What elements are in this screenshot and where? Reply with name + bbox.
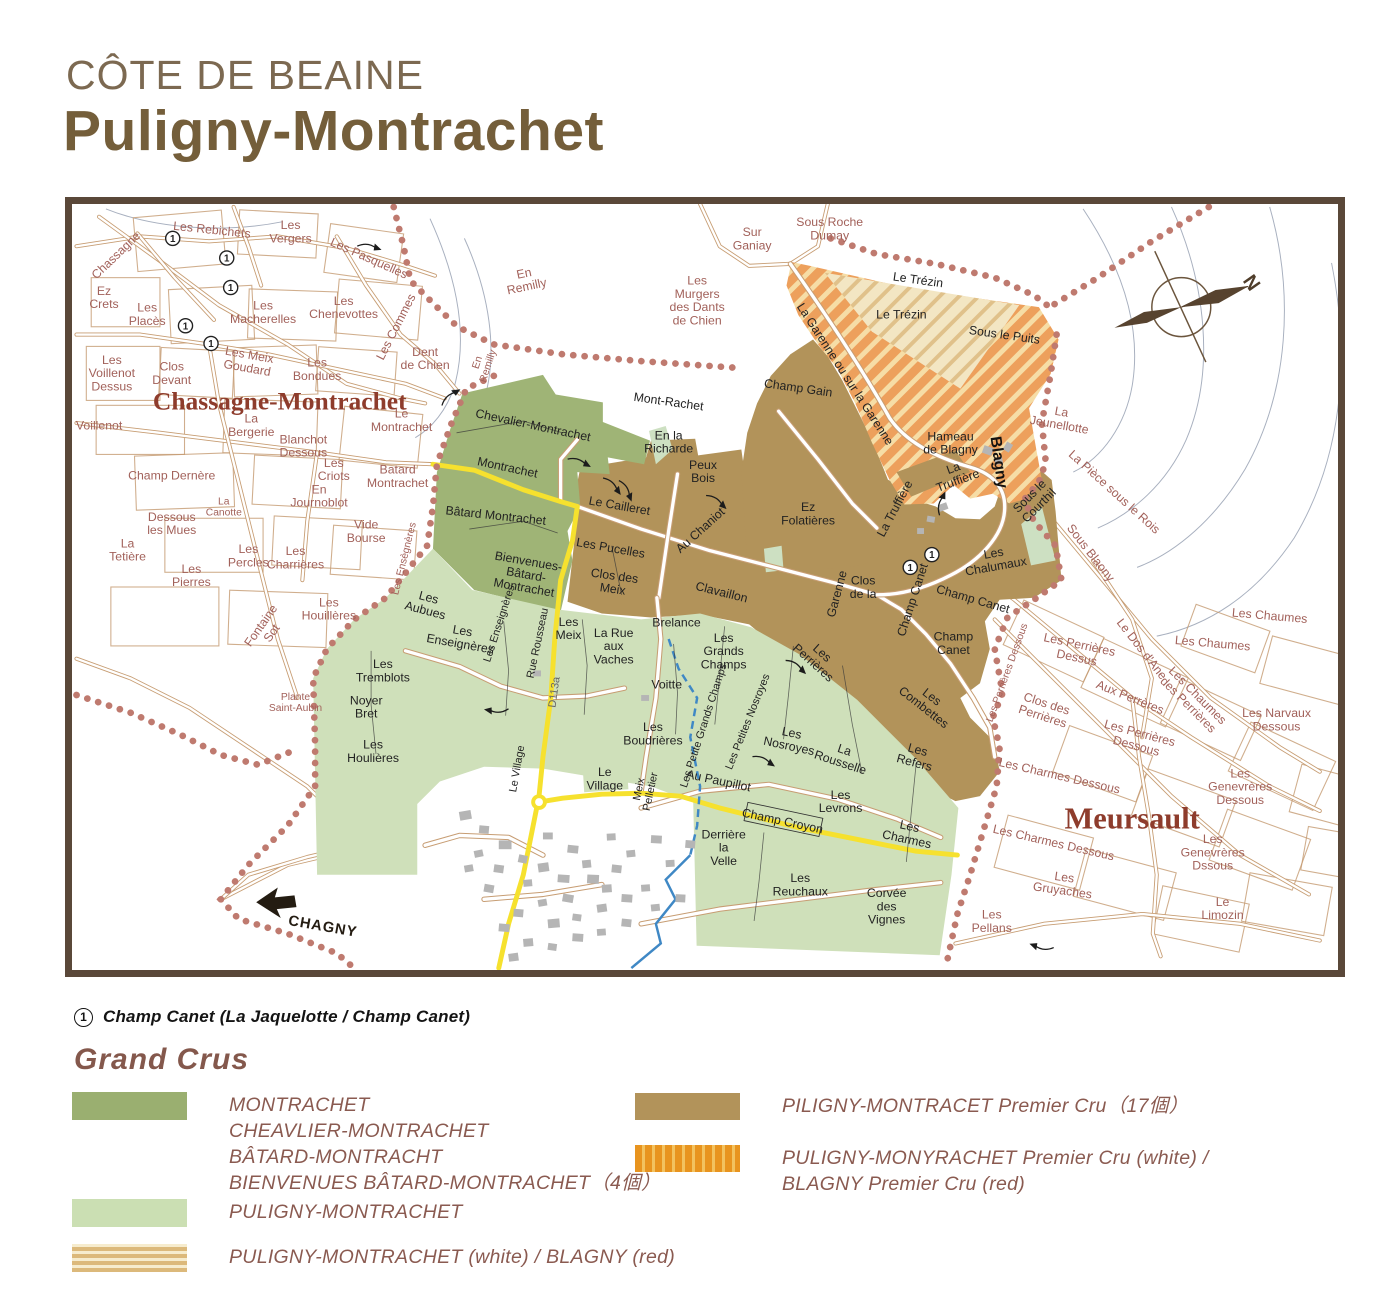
- svg-text:1: 1: [208, 339, 214, 350]
- map-label: Sous Blaony: [1064, 521, 1118, 585]
- map-label: LaTetière: [109, 536, 146, 563]
- map-label: LaBergerie: [228, 412, 275, 439]
- map-label: LesPierres: [172, 562, 211, 589]
- map-label: Dentde Chien: [401, 345, 450, 372]
- map-label: LesVoillenotDessus: [89, 353, 136, 394]
- map-label: LesMacherelles: [230, 299, 296, 326]
- legend-swatch-sw-stripe-h: [72, 1244, 187, 1272]
- circled-number-marker: 1: [166, 231, 180, 245]
- curved-arrow-icon: [1028, 938, 1054, 957]
- map-label: Voillenot: [76, 418, 123, 432]
- map-label: Le Trézin: [876, 307, 927, 321]
- map-label: La Pièce sous le Rois: [1066, 447, 1163, 536]
- map-label: SurGaniay: [733, 225, 773, 252]
- legend-label: PULIGNY-MONYRACHET Premier Cru (white) /…: [782, 1145, 1209, 1197]
- map-label: FontaineSot: [241, 602, 291, 657]
- circled-number-marker: 1: [220, 251, 234, 265]
- legend-label: PILIGNY-MONTRACET Premier Cru（17個）: [782, 1093, 1188, 1119]
- map-label: PeuxBois: [689, 458, 717, 485]
- map-label: LesGenevrèresDssous: [1181, 832, 1245, 873]
- map-label: BlanchotDessous: [279, 432, 327, 459]
- footnote-marker-icon: 1: [74, 1008, 93, 1027]
- map-label: Brelance: [652, 616, 701, 630]
- legend-swatch-sw-premier-cru: [635, 1093, 740, 1120]
- footnote-text: Champ Canet (La Jaquelotte / Champ Canet…: [103, 1007, 470, 1027]
- map-svg: ChassagneLes RebichetsLesVergersLes Pasq…: [72, 204, 1338, 970]
- map-label: Les Chaumes: [1231, 606, 1308, 627]
- svg-text:1: 1: [228, 283, 234, 294]
- map-label: Mont-Rachet: [633, 390, 705, 414]
- map-label: Les Charmes Dessous: [997, 755, 1121, 797]
- page-subtitle: CÔTE DE BEAINE: [66, 52, 424, 99]
- legend-label: PULIGNY-MONTRACHET: [229, 1199, 463, 1225]
- circled-number-marker: 1: [224, 280, 238, 294]
- map-label: EnRemilly: [503, 262, 549, 297]
- map-label: Chassagne: [89, 229, 143, 282]
- legend-item: PULIGNY-MONTRACHET (white) / BLAGNY (red…: [72, 1244, 675, 1272]
- page-title: Puligny-Montrachet: [63, 98, 604, 164]
- legend-swatch-sw-grand-cru: [72, 1092, 187, 1120]
- map-label: LesPellans: [972, 908, 1012, 935]
- map-label: Dessousles Mues: [147, 510, 196, 537]
- map-label: Les PerrièresDessus: [1040, 630, 1117, 672]
- map-label: Les Chaumesdes Perrières: [1156, 664, 1229, 737]
- map-label: LesCriots: [318, 456, 350, 483]
- map-label: LesMurgersdes Dantsde Chien: [670, 274, 725, 328]
- svg-text:1: 1: [183, 321, 189, 332]
- map-label: LesMeix: [556, 615, 582, 642]
- legend-item: PILIGNY-MONTRACET Premier Cru（17個）: [635, 1093, 1188, 1120]
- map-label: Champ Dernère: [128, 468, 215, 482]
- map-label: Meursault: [1065, 801, 1200, 835]
- map-label: LesCharrières: [267, 544, 324, 571]
- map-label: LesGruyaches: [1032, 866, 1095, 901]
- circled-number-marker: 1: [178, 319, 192, 333]
- map-label: ChampCanet: [934, 630, 974, 657]
- legend-swatch-sw-village: [72, 1199, 187, 1227]
- roundabout: [533, 796, 545, 808]
- map-frame: ChassagneLes RebichetsLesVergersLes Pasq…: [65, 197, 1345, 977]
- circled-number-marker: 1: [903, 560, 917, 574]
- map-label: LaCanotte: [206, 497, 242, 519]
- map-label: LesChenevottes: [309, 294, 378, 321]
- map-label: Closde la: [850, 574, 877, 601]
- map-label: Aux Perrères: [1094, 677, 1166, 717]
- map-label: LesVergers: [269, 218, 311, 245]
- map-label: Les MeixGoudard: [222, 344, 275, 379]
- map-label: ClosDevant: [152, 360, 191, 387]
- legend-item: PULIGNY-MONTRACHET: [72, 1199, 463, 1227]
- map-label: LesHouillères: [302, 595, 357, 622]
- map-label: VideBourse: [347, 518, 386, 545]
- map-label: Voitte: [651, 678, 682, 692]
- map-label: LeLimozin: [1201, 895, 1243, 922]
- map-label: Les Chaumes: [1174, 633, 1251, 654]
- map-label: Chassagne-Montrachet: [153, 386, 407, 415]
- svg-text:1: 1: [224, 254, 230, 265]
- map-label: LesGenevrèresDessous: [1208, 766, 1272, 807]
- map-label: Hameaude Blagny: [923, 429, 978, 456]
- circled-number-marker: 1: [204, 336, 218, 350]
- circled-number-marker: 1: [925, 548, 939, 562]
- legend-label: PULIGNY-MONTRACHET (white) / BLAGNY (red…: [229, 1244, 675, 1270]
- map-label: Sous RocheDumay: [796, 215, 863, 242]
- map-label: Clos desPerrières: [1017, 689, 1073, 730]
- map-label: EnJournoblot: [290, 482, 348, 509]
- legend-label: MONTRACHETCHEAVLIER-MONTRACHETBÂTARD-MON…: [229, 1092, 661, 1196]
- map-label: BatardMontrachet: [367, 463, 429, 490]
- footnote: 1 Champ Canet (La Jaquelotte / Champ Can…: [74, 1007, 470, 1027]
- page: { "title": {"region": "CÔTE DE BEAINE", …: [0, 0, 1380, 1298]
- legend-swatch-sw-stripe-v: [635, 1145, 740, 1172]
- legend-item: PULIGNY-MONYRACHET Premier Cru (white) /…: [635, 1145, 1209, 1197]
- map-label: Les NarvauxDessous: [1242, 706, 1311, 733]
- legend-item: MONTRACHETCHEAVLIER-MONTRACHETBÂTARD-MON…: [72, 1092, 661, 1196]
- svg-text:1: 1: [929, 550, 935, 561]
- map-label: N: [1238, 271, 1264, 295]
- svg-text:1: 1: [908, 563, 914, 574]
- svg-text:1: 1: [170, 234, 176, 245]
- map-label: LaJeunellotte: [1029, 400, 1092, 437]
- map-label: EzCrets: [89, 284, 118, 311]
- legend-heading: Grand Crus: [74, 1043, 249, 1077]
